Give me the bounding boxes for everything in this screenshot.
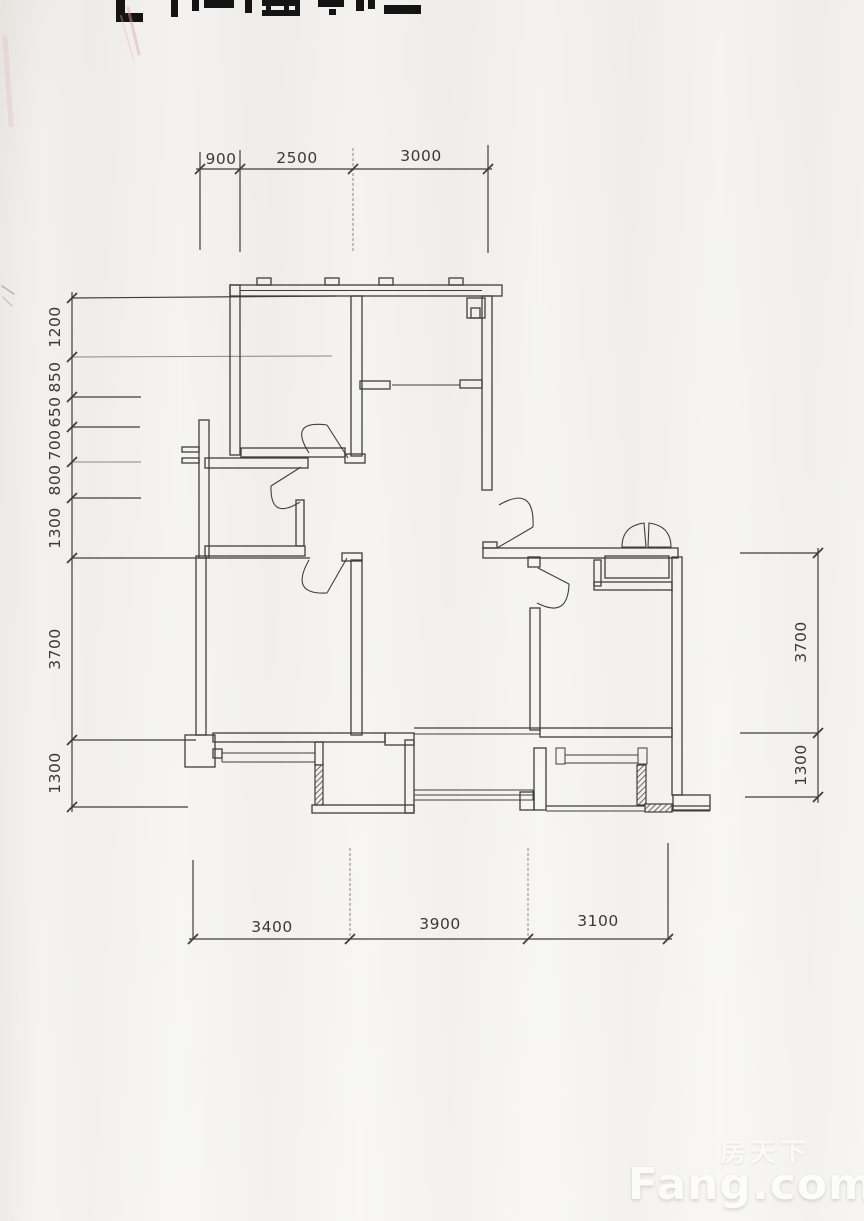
dim-label: 1200 (46, 306, 64, 347)
entry-cabinet (605, 556, 669, 578)
dim-label: 700 (46, 429, 64, 460)
bedroom3-top-wall (594, 582, 672, 590)
doors (271, 424, 671, 608)
hatched-sill-se (645, 804, 672, 812)
west-exterior-wall-lower (196, 556, 206, 735)
dim-label: 1300 (46, 752, 64, 793)
bath-bottom-wall (205, 546, 305, 556)
floor-plan-drawing: 900 2500 3000 1200 850 650 (0, 0, 864, 1221)
dimension-top: 900 2500 3000 (195, 145, 493, 253)
dimension-right: 3700 1300 (740, 548, 823, 803)
dim-label: 2500 (276, 149, 317, 167)
dim-label: 1300 (46, 507, 64, 548)
door-kitchen-passage (497, 498, 533, 548)
center-tall-wall (351, 560, 362, 735)
cropped-title-fragments (116, 0, 421, 22)
window-living-bay (414, 790, 533, 800)
scanned-floor-plan-page: 900 2500 3000 1200 850 650 (0, 0, 864, 1221)
window-se-bedroom (556, 748, 647, 764)
dim-label: 3700 (792, 621, 810, 662)
se-balcony-left-wall (534, 748, 546, 810)
door-bedroom1 (302, 424, 348, 458)
dim-label: 800 (46, 464, 64, 495)
dim-label: 3900 (419, 915, 460, 933)
hall-top-wall (205, 458, 308, 468)
walls (182, 278, 710, 813)
west-exterior-wall-upper (230, 285, 240, 455)
windows (222, 748, 672, 812)
dim-label: 3000 (400, 147, 441, 165)
bedroom3-left-wall (530, 608, 540, 730)
dim-label: 900 (205, 150, 236, 168)
door-bedroom2 (302, 558, 347, 593)
dim-label: 650 (46, 396, 64, 427)
bedroom1-right-wall (351, 296, 362, 456)
bedroom3-bottom-wall (540, 728, 672, 737)
hatched-window-se (637, 765, 646, 805)
dim-label: 850 (46, 361, 64, 392)
east-exterior-wall (672, 557, 682, 795)
dim-label: 3400 (251, 918, 292, 936)
hatched-window-sw (315, 765, 323, 805)
bedroom2-bottom-wall (213, 733, 385, 742)
door-bedroom3 (537, 568, 569, 608)
fixtures (467, 298, 669, 578)
sw-bay-bottom (312, 805, 414, 813)
dimension-bottom: 3400 3900 3100 (188, 843, 673, 944)
scan-smudges (2, 8, 139, 306)
dim-label: 3700 (46, 628, 64, 669)
kitchen-right-wall (482, 296, 492, 490)
dim-label: 1300 (792, 744, 810, 785)
bedroom1-bottom-wall (241, 448, 345, 457)
bath-right-wall (296, 500, 304, 546)
window-sw-bedroom (222, 753, 315, 762)
entry-double-door (622, 523, 671, 547)
dimension-left: 1200 850 650 700 800 1300 3700 1300 (46, 292, 336, 812)
bath-west-wall (199, 420, 209, 558)
dim-label: 3100 (577, 912, 618, 930)
